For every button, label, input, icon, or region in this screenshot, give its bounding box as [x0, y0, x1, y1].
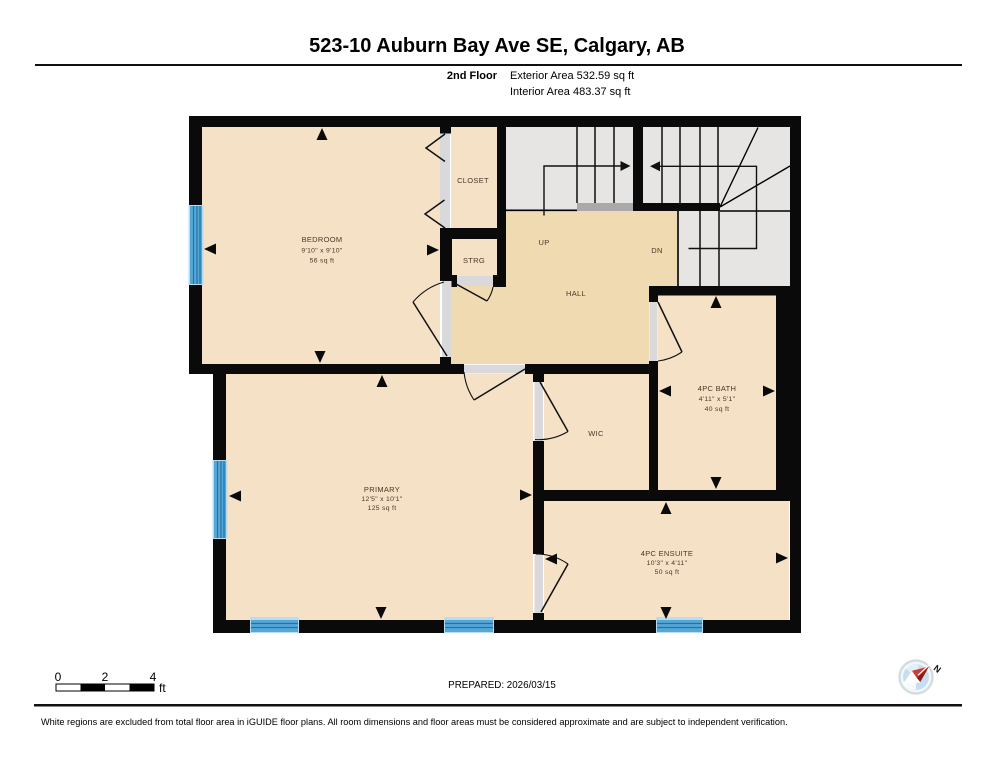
svg-text:STRG: STRG — [463, 256, 485, 265]
svg-text:125 sq ft: 125 sq ft — [368, 505, 397, 512]
svg-text:0: 0 — [55, 670, 62, 684]
svg-text:PRIMARY: PRIMARY — [364, 485, 400, 494]
svg-text:Exterior Area 532.59 sq ft: Exterior Area 532.59 sq ft — [510, 70, 634, 82]
svg-text:40 sq ft: 40 sq ft — [705, 406, 730, 413]
svg-text:HALL: HALL — [566, 289, 586, 298]
svg-text:N: N — [932, 663, 943, 675]
svg-text:4'11" x 5'1": 4'11" x 5'1" — [699, 396, 736, 403]
svg-text:9'10" x 9'10": 9'10" x 9'10" — [301, 248, 342, 255]
svg-text:DN: DN — [651, 246, 662, 255]
svg-text:2nd Floor: 2nd Floor — [447, 70, 498, 82]
svg-text:PREPARED: 2026/03/15: PREPARED: 2026/03/15 — [448, 680, 556, 691]
svg-text:Interior Area 483.37 sq ft: Interior Area 483.37 sq ft — [510, 86, 630, 98]
svg-text:4PC BATH: 4PC BATH — [698, 384, 737, 393]
svg-text:CLOSET: CLOSET — [457, 176, 489, 185]
svg-text:2: 2 — [102, 670, 109, 684]
svg-text:UP: UP — [538, 238, 549, 247]
svg-text:56 sq ft: 56 sq ft — [310, 258, 335, 265]
svg-text:4: 4 — [150, 670, 157, 684]
svg-text:50 sq ft: 50 sq ft — [655, 569, 680, 576]
svg-text:WIC: WIC — [588, 429, 604, 438]
svg-text:White regions are excluded fro: White regions are excluded from total fl… — [41, 717, 788, 727]
svg-text:ft: ft — [159, 681, 166, 695]
svg-text:523-10 Auburn Bay Ave SE, Calg: 523-10 Auburn Bay Ave SE, Calgary, AB — [309, 35, 685, 57]
svg-text:BEDROOM: BEDROOM — [302, 235, 343, 244]
svg-text:12'5" x 10'1": 12'5" x 10'1" — [361, 496, 402, 503]
svg-text:10'3" x 4'11": 10'3" x 4'11" — [647, 560, 688, 567]
svg-text:4PC ENSUITE: 4PC ENSUITE — [641, 549, 693, 558]
